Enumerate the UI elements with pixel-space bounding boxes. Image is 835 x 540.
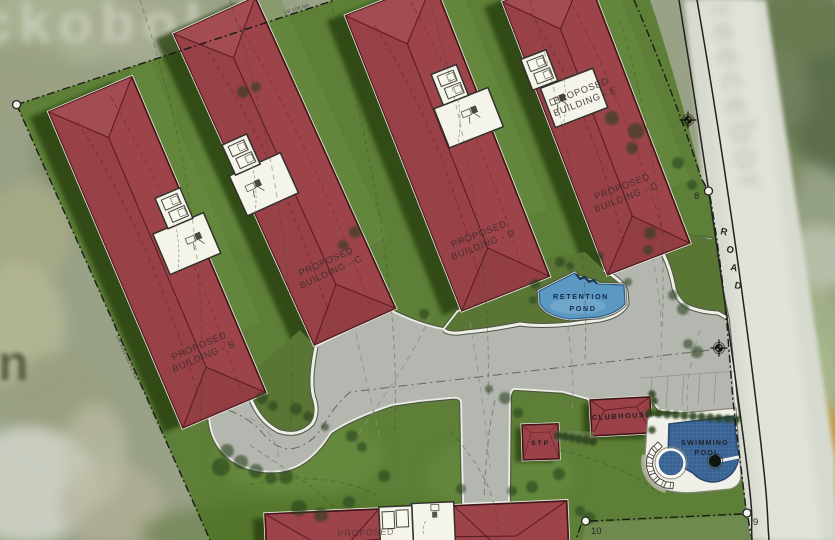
svg-text:n: n (0, 335, 29, 391)
svg-text:RETENTION: RETENTION (553, 292, 609, 301)
svg-text:POOL: POOL (694, 448, 719, 457)
svg-text:9: 9 (753, 517, 758, 528)
svg-text:POND: POND (569, 304, 596, 313)
svg-text:SWIMMING: SWIMMING (681, 438, 729, 447)
svg-text:STP: STP (531, 440, 550, 447)
svg-text:8: 8 (694, 191, 699, 202)
svg-text:10: 10 (591, 526, 602, 537)
